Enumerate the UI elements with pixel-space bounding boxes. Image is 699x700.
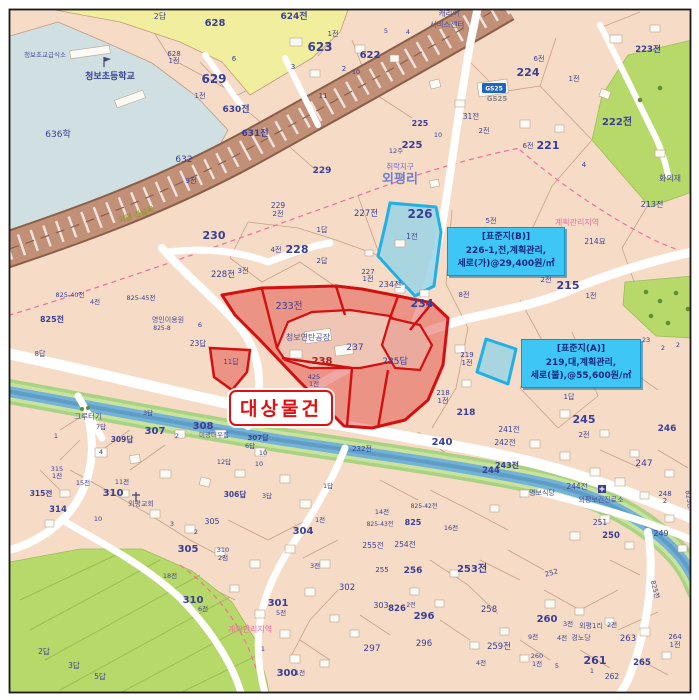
building (280, 630, 290, 638)
parcel-label: 1 (590, 667, 594, 675)
parcel-label: 6답 (245, 442, 255, 450)
parcel-label: 630전 (222, 103, 249, 115)
parcel-label: 9전 (186, 176, 197, 185)
parcel-label: 636학 (45, 129, 70, 140)
parcel-label: 10 (434, 131, 442, 139)
parcel-label: 그루터기 (74, 412, 102, 421)
parcel-label: 623 (307, 40, 332, 54)
building (160, 470, 171, 478)
parcel-label: 6 (198, 321, 202, 329)
parcel-label: 260 (531, 652, 543, 660)
building (250, 560, 260, 568)
parcel-label: 2 (175, 432, 179, 440)
parcel-label: 1전 (569, 74, 580, 83)
parcel-label: 244전 (566, 481, 587, 491)
parcel-label: 3전 (238, 266, 249, 275)
parcel-label: 3전 (563, 619, 573, 628)
parcel-label: 228전 (211, 269, 235, 280)
tree-icon (658, 86, 663, 91)
parcel-label: 255전 (362, 540, 383, 550)
parcel-label: 215 (557, 279, 580, 292)
building (640, 492, 649, 499)
map-frame: GS25GS252답628624전1전6236281전66291전3211630… (0, 0, 699, 700)
callout-a-line3: 세로(불),@55,600원/㎡ (525, 370, 637, 384)
parcel-label: 14전 (375, 507, 389, 516)
parcel-label: 청보초등학교 (85, 70, 135, 82)
parcel-label: 2답 (38, 646, 50, 656)
parcel-label: 2 (676, 341, 680, 349)
parcel-label: 235답 (382, 355, 407, 367)
parcel-label: 2 (342, 65, 346, 73)
building (255, 610, 265, 618)
building (429, 179, 439, 187)
parcel-label: 296 (416, 639, 432, 649)
parcel-label: 233전 (276, 301, 303, 312)
parcel-label: 310 (103, 488, 124, 499)
parcel-label: 8답 (35, 349, 46, 358)
tree-icon (666, 321, 671, 326)
building (420, 290, 429, 297)
parcel-label: 8전 (459, 290, 470, 299)
parcel-label: 2 (661, 344, 665, 352)
parcel-label: 31전 (463, 111, 480, 121)
parcel-label: 1전 (328, 29, 339, 38)
parcel-label: 영인이용원 (152, 315, 184, 324)
building (665, 470, 674, 477)
parcel-label: 1답 (564, 392, 575, 401)
building (590, 468, 600, 476)
parcel-label: 263 (620, 634, 636, 644)
parcel-label: 254전 (394, 539, 415, 549)
building (650, 25, 660, 32)
parcel-label: 4전 (271, 245, 282, 254)
callout-b-line3: 세로(가)@29,400원/㎡ (451, 258, 561, 272)
parcel-label: 225 (402, 140, 423, 151)
parcel-label: 825전 (40, 314, 64, 324)
building (435, 600, 444, 607)
parcel-label: 825-45전 (126, 293, 155, 302)
subject-property-label: 대상물건 (229, 390, 333, 426)
parcel-label: 229 (271, 201, 286, 210)
building (230, 585, 239, 592)
parcel-label: 306답 (224, 489, 247, 499)
parcel-label: 307 (145, 426, 166, 437)
parcel-label: 15전 (76, 478, 90, 487)
building (490, 505, 499, 512)
parcel-label: 11전 (115, 477, 129, 486)
building (410, 588, 419, 595)
parcel-label: 계획관리지역 (228, 624, 272, 634)
clinic-icon (598, 485, 606, 493)
parcel-label: 5답 (94, 671, 106, 681)
parcel-label: 3답 (68, 660, 80, 670)
parcel-label: 264 (668, 633, 682, 641)
parcel-label: 310 (217, 546, 229, 554)
building (45, 520, 54, 527)
parcel-label: 241전 (498, 424, 519, 434)
parcel-label: 5 (384, 27, 388, 35)
building (305, 588, 315, 596)
gs25-sign-label: GS25 (485, 86, 503, 93)
building (60, 490, 70, 497)
building (290, 350, 302, 358)
parcel-label: 10 (259, 449, 267, 457)
building (600, 430, 609, 437)
parcel-label: 명보식당 (529, 488, 555, 497)
parcel-label: 247 (635, 459, 652, 469)
parcel-label: 2답 (317, 256, 328, 265)
building (575, 608, 584, 615)
parcel-label: 9전 (528, 632, 538, 641)
building (285, 545, 295, 553)
parcel-label: 외평리 (382, 171, 418, 187)
parcel-label: 1 (261, 645, 265, 653)
parcel-label: 307답 (247, 433, 269, 442)
parcel-label: 2 (663, 497, 667, 505)
building (665, 515, 674, 522)
tree-icon (658, 299, 663, 304)
callout-a-title: [표준지(A)] (525, 343, 637, 357)
parcel-label: 234전 (379, 279, 402, 289)
building (235, 470, 245, 477)
building (560, 410, 570, 418)
parcel-label: 628 (205, 18, 226, 29)
parcel-label: 2전 (406, 601, 415, 609)
parcel-label: 경노당 (571, 633, 591, 642)
parcel-label: 246 (658, 424, 677, 434)
parcel-label: 3답 (143, 409, 153, 417)
building (678, 545, 687, 552)
parcel-label: 265 (633, 658, 651, 668)
building (570, 532, 580, 540)
parcel-label: 825-8 (153, 325, 171, 332)
parcel-label: 16전 (444, 523, 458, 532)
parcel-label: 258 (481, 605, 497, 615)
parcel-label: 230 (203, 229, 226, 242)
building (530, 440, 540, 448)
parcel-label: 261 (584, 654, 607, 667)
parcel-label: 화의재 (659, 173, 681, 183)
parcel-label: 214묘 (584, 237, 605, 246)
parcel-label: 외평교회 (128, 499, 154, 508)
building (365, 250, 373, 256)
callout-standard-parcel-a: [표준지(A)] 219,대,계획관리, 세로(불),@55,600원/㎡ (521, 339, 641, 388)
building (560, 452, 570, 460)
parcel-label: 4 (406, 28, 410, 36)
parcel-label: 11 (319, 92, 328, 100)
building (395, 240, 405, 247)
parcel-label: 1전 (309, 379, 319, 388)
parcel-label: 262 (605, 672, 620, 681)
parcel-label: 244 (482, 466, 500, 476)
parcel-label: 11답 (223, 357, 239, 366)
parcel-label: 825-43전 (367, 520, 394, 528)
parcel-label: 2 (194, 528, 198, 536)
parcel-label: 1답 (323, 482, 333, 490)
parcel-label: 1전 (195, 91, 206, 100)
parcel-label: 4전 (476, 658, 486, 667)
parcel-label: 23답 (190, 338, 207, 348)
parcel-label: 청보초교급식소 (24, 50, 66, 59)
parcel-label: 3답 (262, 492, 272, 500)
parcel-label: 2전 (607, 620, 617, 629)
tree-icon (674, 291, 679, 296)
building (520, 120, 530, 128)
parcel-label: 1전 (462, 358, 473, 367)
building (520, 655, 529, 662)
parcel-label: 260 (537, 614, 558, 625)
building (150, 510, 160, 518)
parcel-label: 4 (582, 161, 587, 169)
parcel-label: 314 (49, 505, 67, 515)
building (390, 55, 399, 62)
tree-icon (649, 314, 654, 319)
parcel-label: 629 (201, 72, 226, 86)
parcel-label: 826 (388, 604, 406, 614)
parcel-label: 서비스센터 (430, 19, 465, 29)
parcel-label: 309답 (111, 434, 134, 444)
building (350, 630, 359, 637)
parcel-label: 624전 (280, 10, 307, 22)
parcel-label: 227전 (354, 208, 378, 219)
parcel-label: 1전 (52, 471, 62, 480)
parcel-label: 1 (54, 432, 58, 440)
building (310, 70, 320, 77)
parcel-label: 219 (460, 351, 473, 359)
building (545, 600, 555, 608)
parcel-label: 226 (407, 207, 432, 221)
parcel-label: 250 (602, 531, 620, 541)
parcel-label: 825 (405, 518, 422, 527)
callout-b-line2: 226-1,전,계획관리, (451, 245, 561, 259)
parcel-label: 256 (404, 566, 423, 576)
parcel-label: 240 (432, 437, 453, 448)
callout-standard-parcel-b: [표준지(B)] 226-1,전,계획관리, 세로(가)@29,400원/㎡ (447, 227, 565, 276)
building (640, 628, 650, 636)
tree-icon (638, 98, 643, 103)
parcel-label: 2전 (479, 126, 490, 135)
building (520, 490, 529, 497)
parcel-label: 12답 (217, 458, 231, 466)
parcel-label: 302 (339, 583, 355, 593)
building (300, 500, 311, 508)
parcel-label: 1전 (169, 56, 180, 65)
parcel-label: 1전 (532, 659, 542, 668)
building (280, 475, 290, 483)
parcel-label: 4 (99, 448, 103, 456)
parcel-label: 232전 (352, 444, 372, 453)
parcel-label: 229 (313, 166, 332, 176)
building (330, 615, 339, 622)
parcel-label: 6전 (198, 604, 208, 613)
tree-icon (644, 290, 649, 295)
parcel-label: 7답 (96, 423, 106, 431)
parcel-label: 825-40전 (55, 290, 84, 299)
building (320, 560, 330, 568)
parcel-label: 315전 (30, 488, 53, 498)
parcel-label: 2전 (579, 430, 590, 439)
parcel-label: 1전 (406, 231, 418, 241)
parcel-label: 303 (373, 601, 388, 610)
parcel-label: 297 (363, 644, 380, 654)
parcel-label: 5전 (486, 216, 497, 225)
parcel-label: 251 (593, 518, 608, 527)
building (290, 38, 302, 46)
parcel-label: 238 (312, 356, 333, 367)
callout-b-title: [표준지(B)] (451, 231, 561, 245)
parcel-label: 10 (255, 460, 263, 468)
parcel-label: 2전 (218, 553, 228, 562)
parcel-label: 255 (375, 566, 388, 574)
building (615, 478, 625, 486)
parcel-label: 취락지구 (386, 162, 414, 171)
parcel-label: 237 (346, 343, 363, 353)
parcel-label: 1전 (670, 640, 681, 649)
parcel-label: 632 (175, 155, 192, 165)
parcel-label: 234 (411, 297, 434, 310)
building (662, 652, 671, 659)
parcel-label: 242전 (494, 437, 515, 447)
building (500, 628, 509, 635)
parcel-label: 6전 (523, 141, 534, 150)
building (610, 35, 622, 43)
parcel-label: 6 (232, 55, 237, 63)
gs25-ghost-label: GS25 (487, 95, 508, 103)
parcel-label: 304 (293, 526, 314, 537)
parcel-label: 296 (414, 611, 435, 622)
building (625, 542, 634, 549)
parcel-label: 218 (436, 389, 449, 397)
parcel-label: 305 (178, 544, 199, 555)
parcel-label: 1전 (586, 291, 597, 300)
parcel-label: 223전 (635, 44, 661, 55)
parcel-label: 계획관리지역 (555, 217, 599, 227)
parcel-label: 5 (555, 662, 559, 670)
parcel-label: 228 (286, 243, 309, 256)
parcel-label: 224 (517, 66, 540, 79)
parcel-label: 2전 (541, 275, 552, 284)
parcel-label: 222전 (602, 115, 632, 128)
parcel-label: 245 (573, 413, 596, 426)
parcel-label: 6전 (534, 54, 545, 63)
parcel-label: 외평1리 (579, 621, 603, 630)
parcel-label: 1전 (438, 396, 449, 405)
building (655, 150, 665, 157)
parcel-label: 825-42전 (411, 502, 438, 510)
building (555, 125, 564, 132)
building (320, 660, 329, 667)
parcel-label: 622 (360, 50, 381, 61)
parcel-label: 1전 (363, 274, 374, 283)
parcel-label: 2답 (154, 11, 167, 21)
parcel-label: 5전 (276, 608, 286, 617)
parcel-label: 외평보건진료소 (578, 495, 624, 504)
parcel-label: 1전 (315, 515, 325, 524)
callout-a-line2: 219,대,계획관리, (525, 357, 637, 371)
building (462, 380, 471, 387)
parcel-label: 18전 (163, 571, 177, 580)
parcel-label: 213전 (641, 199, 664, 209)
building (455, 100, 465, 107)
parcel-label: 301 (268, 598, 289, 609)
parcel-label: 3전 (310, 561, 320, 570)
parcel-label: 305 (204, 517, 219, 526)
parcel-label: 10 (352, 68, 360, 76)
parcel-label: 4전 (557, 633, 567, 642)
parcel-label: 221 (537, 139, 560, 152)
parcel-label: 12주 (389, 147, 403, 155)
parcel-label: 225 (412, 119, 429, 128)
parcel-label: 10 (94, 515, 102, 523)
parcel-label: 3 (291, 63, 295, 71)
building (470, 642, 479, 649)
parcel-label: 청보연탄공장 (286, 332, 331, 342)
parcel-label: 23 (642, 336, 650, 344)
parcel-label: 259전 (487, 641, 511, 652)
parcel-label: 2전 (273, 209, 284, 218)
parcel-label: 253전 (457, 562, 487, 575)
building (129, 454, 140, 464)
parcel-label: 249 (653, 529, 668, 538)
parcel-label: 3 (170, 520, 174, 528)
parcel-label: 미광더우집 (199, 430, 229, 439)
parcel-label: 631전 (241, 127, 268, 139)
parcel-label: 1전 (295, 668, 305, 677)
building (630, 450, 639, 457)
parcel-label: 4전 (90, 297, 100, 306)
parcel-label: 218 (457, 408, 476, 418)
building (290, 655, 300, 663)
parcel-label: 1답 (317, 225, 328, 234)
